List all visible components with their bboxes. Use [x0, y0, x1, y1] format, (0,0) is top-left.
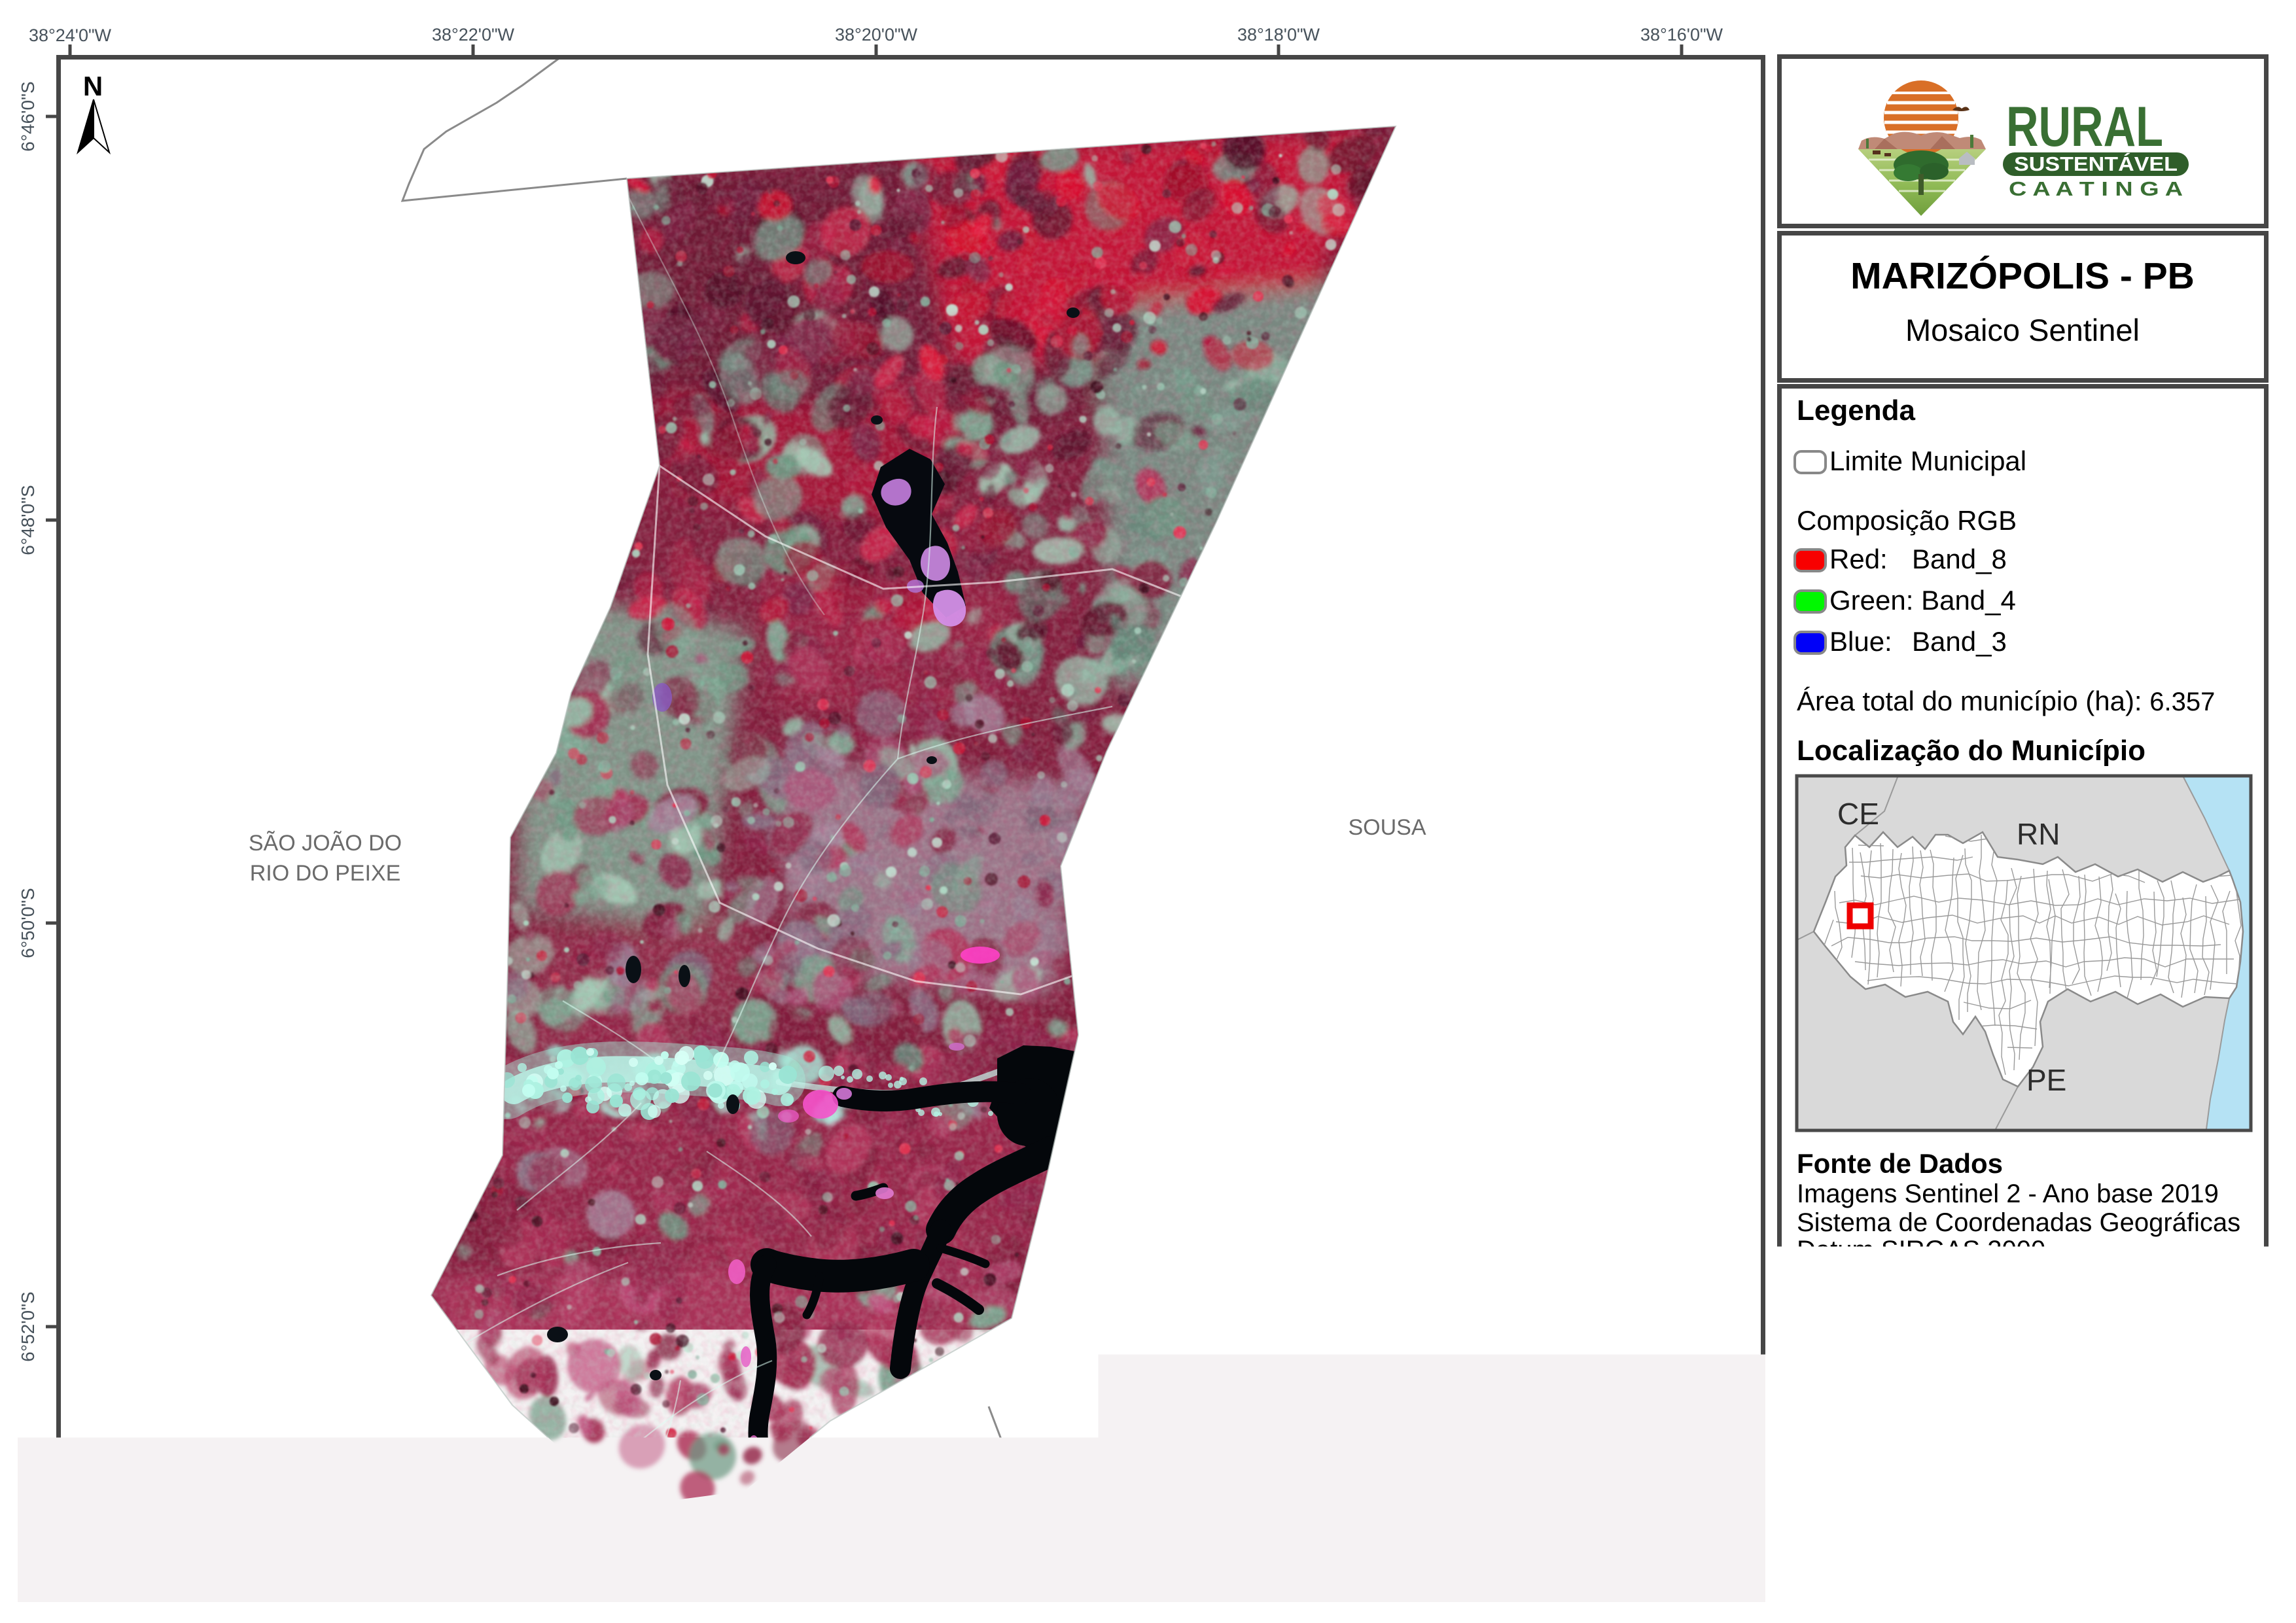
svg-text:BRITAIN & NORTHERN IRELAND: BRITAIN & NORTHERN IRELAND — [2007, 1452, 2079, 1459]
svg-text:N: N — [83, 71, 103, 101]
svg-text:0: 0 — [76, 1501, 90, 1529]
svg-text:Limite Municipal: Limite Municipal — [1829, 445, 2026, 476]
svg-text:4 km: 4 km — [512, 1501, 565, 1529]
svg-text:6°48'0"S: 6°48'0"S — [18, 485, 38, 555]
svg-text:Sistema de Coordenadas Geográf: Sistema de Coordenadas Geográficas — [1797, 1208, 2240, 1237]
svg-text:SUSTENTÁVEL: SUSTENTÁVEL — [2014, 152, 2178, 175]
svg-text:GOVERNO FEDERAL: GOVERNO FEDERAL — [2079, 1546, 2227, 1560]
svg-text:Fonte de Dados: Fonte de Dados — [1797, 1148, 2003, 1179]
svg-text:38°16'0"W: 38°16'0"W — [1639, 1582, 1725, 1602]
svg-text:Localização do Município: Localização do Município — [1797, 735, 2146, 767]
svg-text:Imagens Sentinel 2 - Ano base: Imagens Sentinel 2 - Ano base 2019 — [1797, 1179, 2219, 1208]
svg-text:Band_8: Band_8 — [1912, 544, 2007, 574]
svg-text:38°24'0"W: 38°24'0"W — [27, 1582, 113, 1602]
svg-text:Green: Band_4: Green: Band_4 — [1829, 585, 2016, 616]
svg-text:GREAT: GREAT — [2011, 1422, 2076, 1448]
svg-text:38°22'0"W: 38°22'0"W — [432, 25, 515, 44]
svg-text:NAZAREZINHO: NAZAREZINHO — [804, 1518, 964, 1543]
svg-text:2: 2 — [293, 1501, 307, 1529]
svg-text:CE: CE — [1837, 797, 1879, 831]
svg-text:38°18'0"W: 38°18'0"W — [1236, 1582, 1322, 1602]
svg-text:de Desenvolvimento: de Desenvolvimento — [1877, 1469, 1983, 1482]
svg-text:6°46'0"S: 6°46'0"S — [18, 81, 38, 151]
svg-text:38°20'0"W: 38°20'0"W — [835, 25, 918, 44]
svg-text:Composição RGB: Composição RGB — [1797, 505, 2017, 536]
svg-text:PARTNERSHIP: PARTNERSHIP — [2108, 1422, 2248, 1449]
svg-text:Banco Interamericano: Banco Interamericano — [1877, 1456, 1992, 1469]
svg-text:RURAL: RURAL — [2006, 96, 2163, 158]
svg-text:PE: PE — [2026, 1063, 2066, 1097]
svg-text:38°18'0"W: 38°18'0"W — [1237, 25, 1320, 44]
svg-text:1: 1 — [185, 1501, 198, 1529]
svg-text:Legenda: Legenda — [1797, 394, 1915, 427]
svg-text:Red:: Red: — [1829, 544, 1888, 574]
svg-text:Área total do município (ha):: Área total do município (ha): 6.357 — [1797, 686, 2215, 716]
svg-text:38°24'0"W: 38°24'0"W — [29, 26, 112, 45]
svg-text:RN: RN — [2017, 817, 2060, 851]
svg-text:Band_3: Band_3 — [1912, 626, 2007, 657]
svg-text:38°16'0"W: 38°16'0"W — [1640, 25, 1723, 44]
svg-text:C A A T I N G A: C A A T I N G A — [2009, 177, 2183, 200]
svg-text:38°22'0"W: 38°22'0"W — [431, 1582, 516, 1602]
svg-text:38°20'0"W: 38°20'0"W — [834, 1582, 919, 1602]
svg-text:RIO DO PEIXE: RIO DO PEIXE — [250, 861, 401, 886]
svg-text:SÃO JOÃO DO: SÃO JOÃO DO — [249, 831, 402, 856]
svg-text:6°52'0"S: 6°52'0"S — [18, 1291, 38, 1361]
svg-text:Datum SIRGAS 2000: Datum SIRGAS 2000 — [1797, 1236, 2045, 1265]
svg-text:Blue:: Blue: — [1829, 626, 1892, 657]
svg-text:E ABASTECIMENTO: E ABASTECIMENTO — [1841, 1533, 1986, 1550]
svg-text:SOUSA: SOUSA — [1348, 815, 1426, 840]
svg-text:fbds: fbds — [2001, 1319, 2117, 1380]
svg-text:MARIZÓPOLIS - PB: MARIZÓPOLIS - PB — [1850, 255, 2195, 297]
svg-text:Mosaico Sentinel: Mosaico Sentinel — [1905, 313, 2140, 347]
svg-text:for: for — [2086, 1425, 2110, 1446]
svg-text:6°50'0"S: 6°50'0"S — [18, 888, 38, 958]
